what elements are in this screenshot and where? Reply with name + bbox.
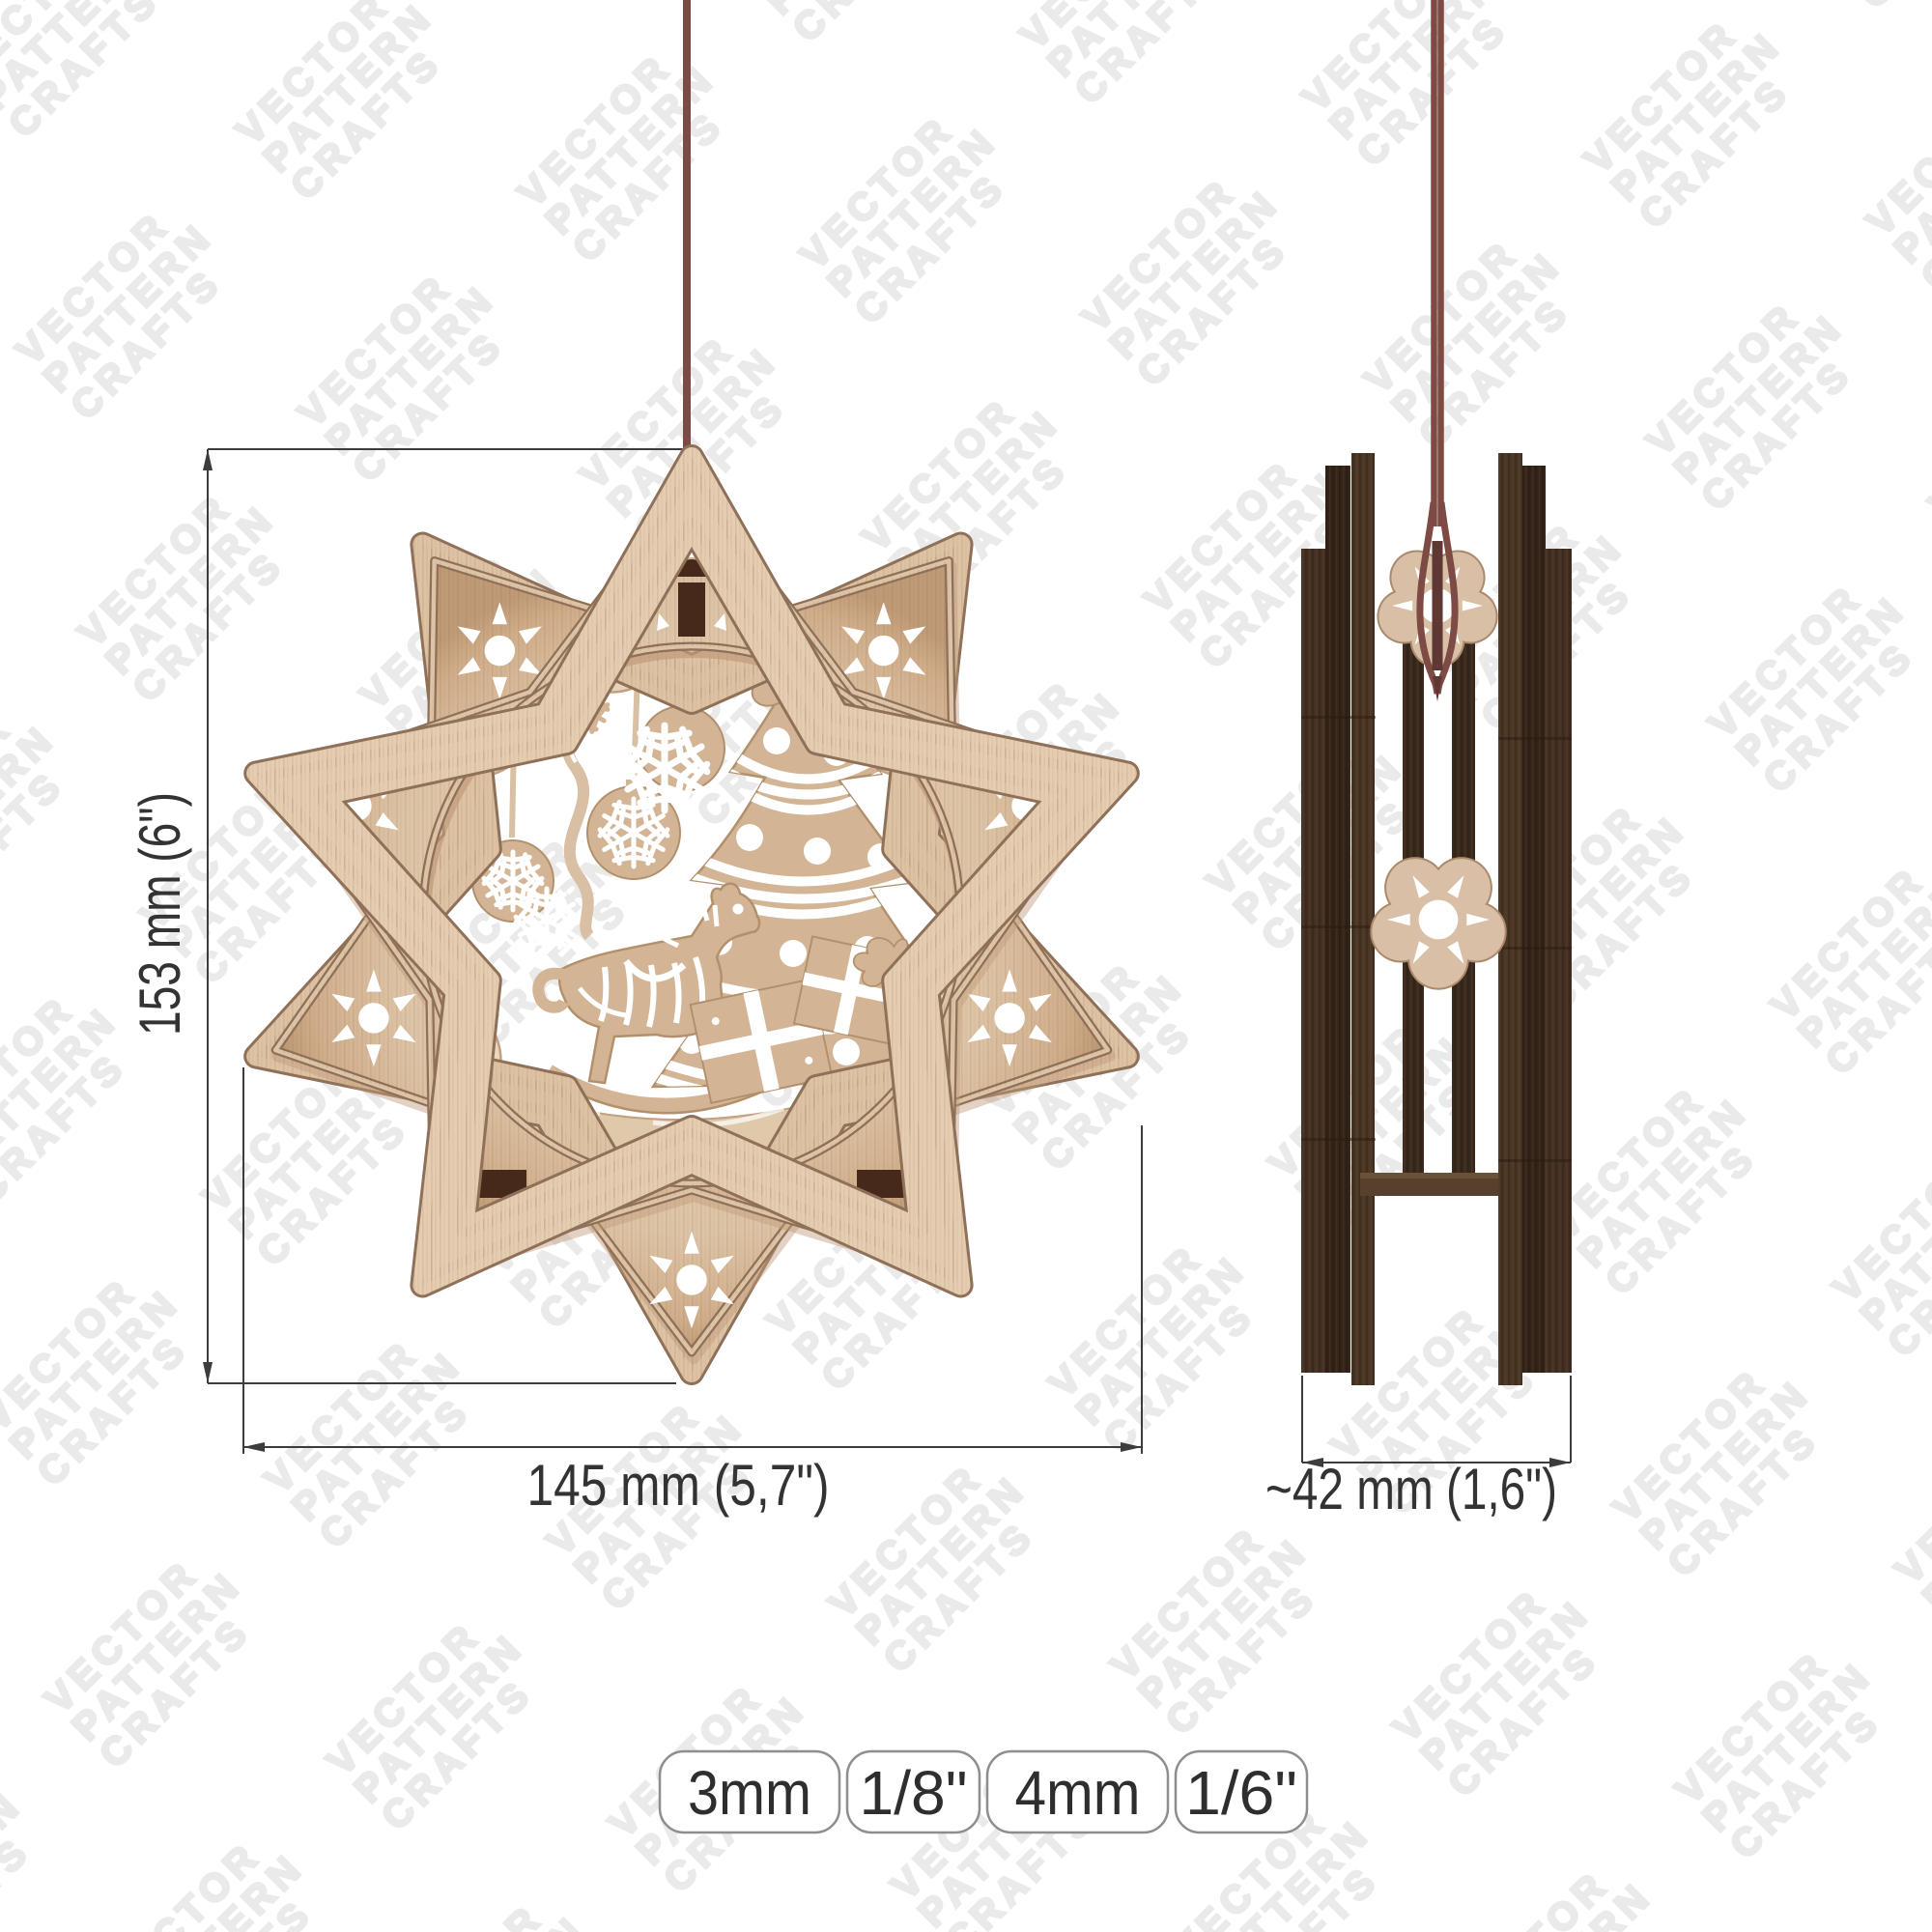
svg-text:153 mm (6"): 153 mm (6") [128,792,192,1036]
svg-text:1/8": 1/8" [860,1758,968,1828]
svg-text:~42 mm (1,6"): ~42 mm (1,6") [1265,1457,1557,1521]
svg-text:4mm: 4mm [1015,1758,1141,1828]
svg-text:145 mm (5,7"): 145 mm (5,7") [527,1453,830,1518]
svg-text:3mm: 3mm [688,1758,811,1828]
svg-text:1/6": 1/6" [1185,1758,1297,1828]
